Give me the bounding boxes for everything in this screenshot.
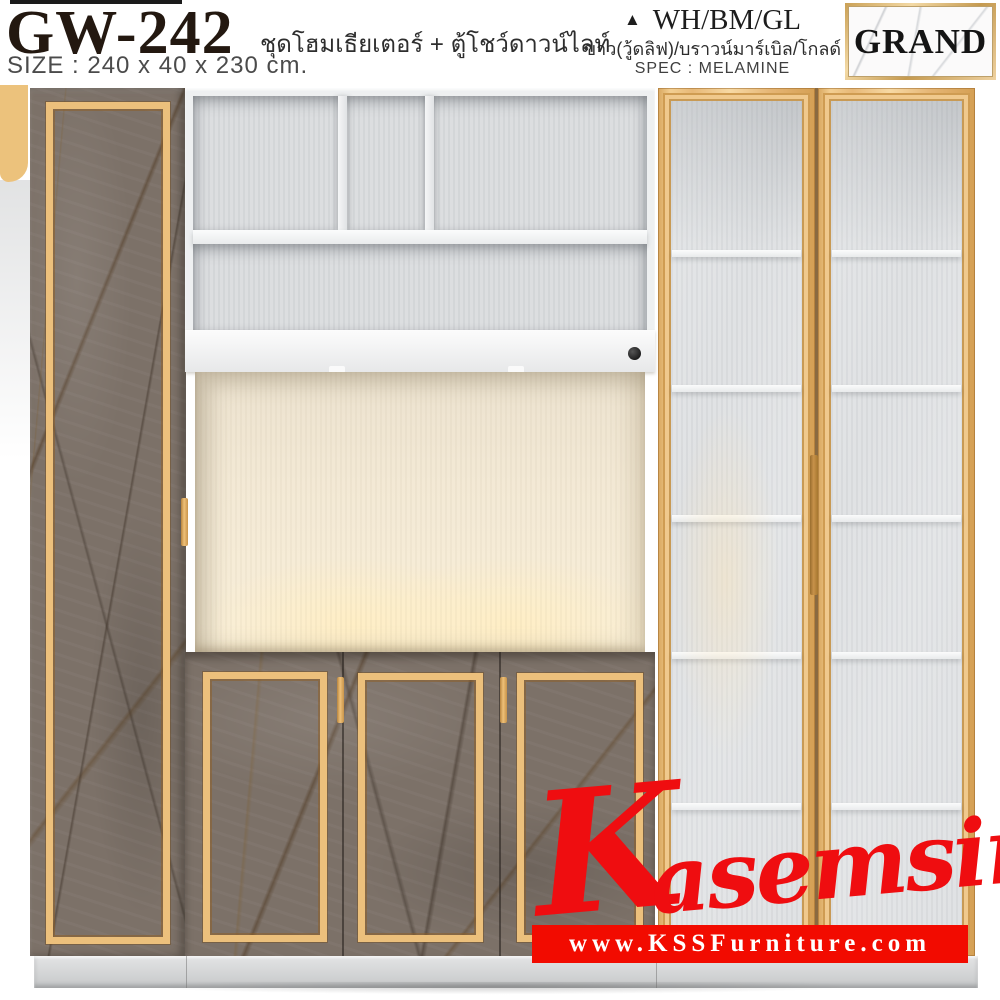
tall-wardrobe (30, 88, 186, 956)
shelf-bay-left (193, 96, 647, 230)
base-door-trim (517, 673, 643, 942)
finish-description-thai: ขาว(วู้ดลิฟ)/บราวน์มาร์เบิล/โกลด์ (565, 34, 860, 63)
base-door-trim (203, 672, 327, 942)
center-unit (185, 88, 655, 956)
website-url: www.KSSFurniture.com (569, 930, 931, 958)
base-cabinet (185, 652, 655, 956)
corner-fragment (0, 85, 28, 182)
product-card: GW-242 ชุดโฮมเธียเตอร์ + ตู้โชว์ดาวน์ไลท… (0, 0, 1000, 1000)
left-wall-shadow (0, 180, 30, 460)
size-label: SIZE : 240 x 40 x 230 cm. (7, 52, 308, 80)
downlight-fascia (185, 330, 655, 372)
niche-texture (195, 372, 645, 652)
brand-logo-frame: GRAND (845, 3, 996, 80)
product-subtitle-thai: ชุดโฮมเธียเตอร์ + ตู้โชว์ดาวน์ไลท์ (260, 24, 610, 63)
shelf-bay-wide (193, 244, 647, 330)
brand-logo: GRAND (848, 6, 993, 77)
base-door-handle (337, 677, 344, 723)
shelf-divider (338, 96, 347, 230)
glass-door (671, 101, 802, 932)
floor-shadow (20, 982, 970, 998)
finish-code-line: ▲WH/BM/GL (585, 4, 840, 37)
shelf-board (193, 230, 647, 244)
power-dot (628, 347, 641, 360)
base-door-handle (500, 677, 507, 723)
finish-code: WH/BM/GL (653, 4, 801, 36)
display-cabinet-right (818, 88, 975, 956)
glass-sheen (671, 101, 802, 932)
spec-label: SPEC : MELAMINE (585, 60, 840, 78)
wardrobe-door-trim (46, 102, 170, 944)
base-door-trim (358, 673, 483, 942)
glass-door (831, 101, 962, 932)
upper-shelf-section (185, 88, 655, 330)
shelf-divider (425, 96, 434, 230)
display-cabinet-left (658, 88, 815, 956)
glass-door-handle (810, 455, 818, 595)
downlight-niche (195, 372, 645, 652)
triangle-icon: ▲ (624, 10, 641, 29)
glass-sheen (831, 101, 962, 932)
website-banner: www.KSSFurniture.com (532, 925, 968, 963)
